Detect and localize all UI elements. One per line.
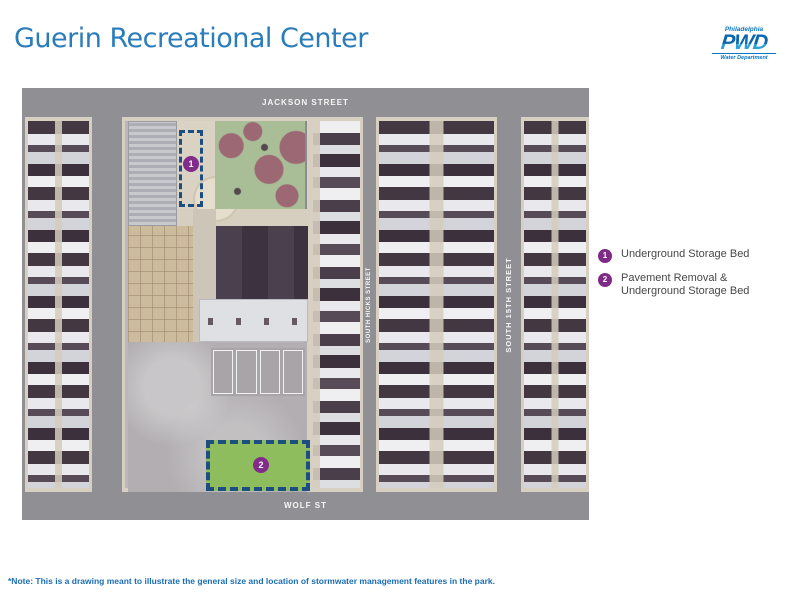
slide: Guerin Recreational Center Philadelphia … — [0, 0, 785, 603]
rowhouse-block-east — [521, 117, 589, 492]
rowhouse-block-west — [25, 117, 92, 492]
legend-label-2-line2: Underground Storage Bed — [621, 285, 749, 297]
logo-department-text: Water Department — [712, 53, 776, 62]
tennis-court — [236, 350, 256, 394]
rowhouse-strip-park-east — [310, 117, 363, 492]
legend-label-1: Underground Storage Bed — [621, 248, 749, 263]
park-block: 1 2 — [122, 117, 310, 492]
park-building-ribbed-roof — [128, 121, 177, 226]
recreation-center-building — [216, 226, 308, 299]
rowhouse-block-center — [376, 117, 497, 492]
map-marker-1: 1 — [183, 156, 199, 172]
street-label-wolf: WOLF ST — [22, 492, 589, 520]
tennis-court — [260, 350, 280, 394]
legend-item-2: 2 Pavement Removal & Underground Storage… — [598, 272, 778, 298]
legend-marker-2: 2 — [598, 273, 612, 287]
tennis-court — [213, 350, 233, 394]
legend-label-2: Pavement Removal & Underground Storage B… — [621, 272, 749, 298]
legend-item-1: 1 Underground Storage Bed — [598, 248, 778, 263]
page-title: Guerin Recreational Center — [14, 20, 368, 58]
park-playground-surface — [215, 121, 307, 209]
legend-marker-1: 1 — [598, 249, 612, 263]
aerial-map: JACKSON STREET WOLF ST SOUTH 16TH STREET… — [22, 88, 589, 520]
legend: 1 Underground Storage Bed 2 Pavement Rem… — [598, 248, 778, 307]
logo-acronym-text: PWD — [711, 33, 777, 53]
park-grid-plaza — [128, 226, 193, 344]
footnote: *Note: This is a drawing meant to illust… — [8, 576, 628, 586]
park-building-vented-roof — [199, 299, 308, 342]
pwd-logo: Philadelphia PWD Water Department — [712, 26, 776, 62]
legend-label-1-line1: Underground Storage Bed — [621, 248, 749, 260]
tennis-court — [283, 350, 303, 394]
tennis-courts — [211, 348, 305, 396]
street-label-jackson: JACKSON STREET — [22, 88, 589, 117]
map-marker-2: 2 — [253, 457, 269, 473]
legend-label-2-line1: Pavement Removal & — [621, 272, 727, 284]
city-blocks: 1 2 — [22, 117, 589, 492]
